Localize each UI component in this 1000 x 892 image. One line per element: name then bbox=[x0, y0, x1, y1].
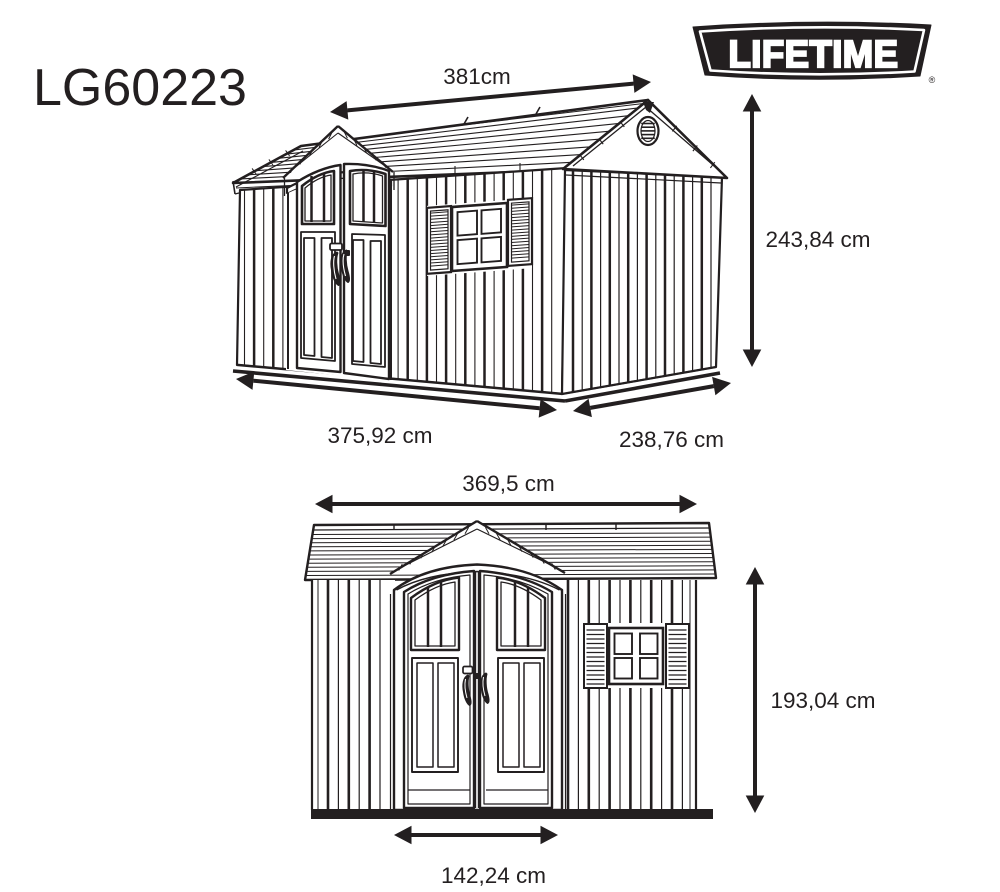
svg-text:381cm: 381cm bbox=[443, 64, 511, 89]
svg-text:243,84 cm: 243,84 cm bbox=[765, 227, 870, 252]
svg-text:369,5 cm: 369,5 cm bbox=[462, 471, 555, 496]
svg-text:193,04 cm: 193,04 cm bbox=[770, 688, 875, 713]
svg-text:375,92 cm: 375,92 cm bbox=[327, 423, 432, 448]
svg-text:®: ® bbox=[929, 75, 936, 85]
svg-text:LIFETIME: LIFETIME bbox=[729, 32, 899, 75]
svg-text:LG60223: LG60223 bbox=[33, 59, 247, 117]
svg-text:238,76 cm: 238,76 cm bbox=[619, 427, 724, 452]
svg-text:142,24 cm: 142,24 cm bbox=[441, 863, 546, 888]
